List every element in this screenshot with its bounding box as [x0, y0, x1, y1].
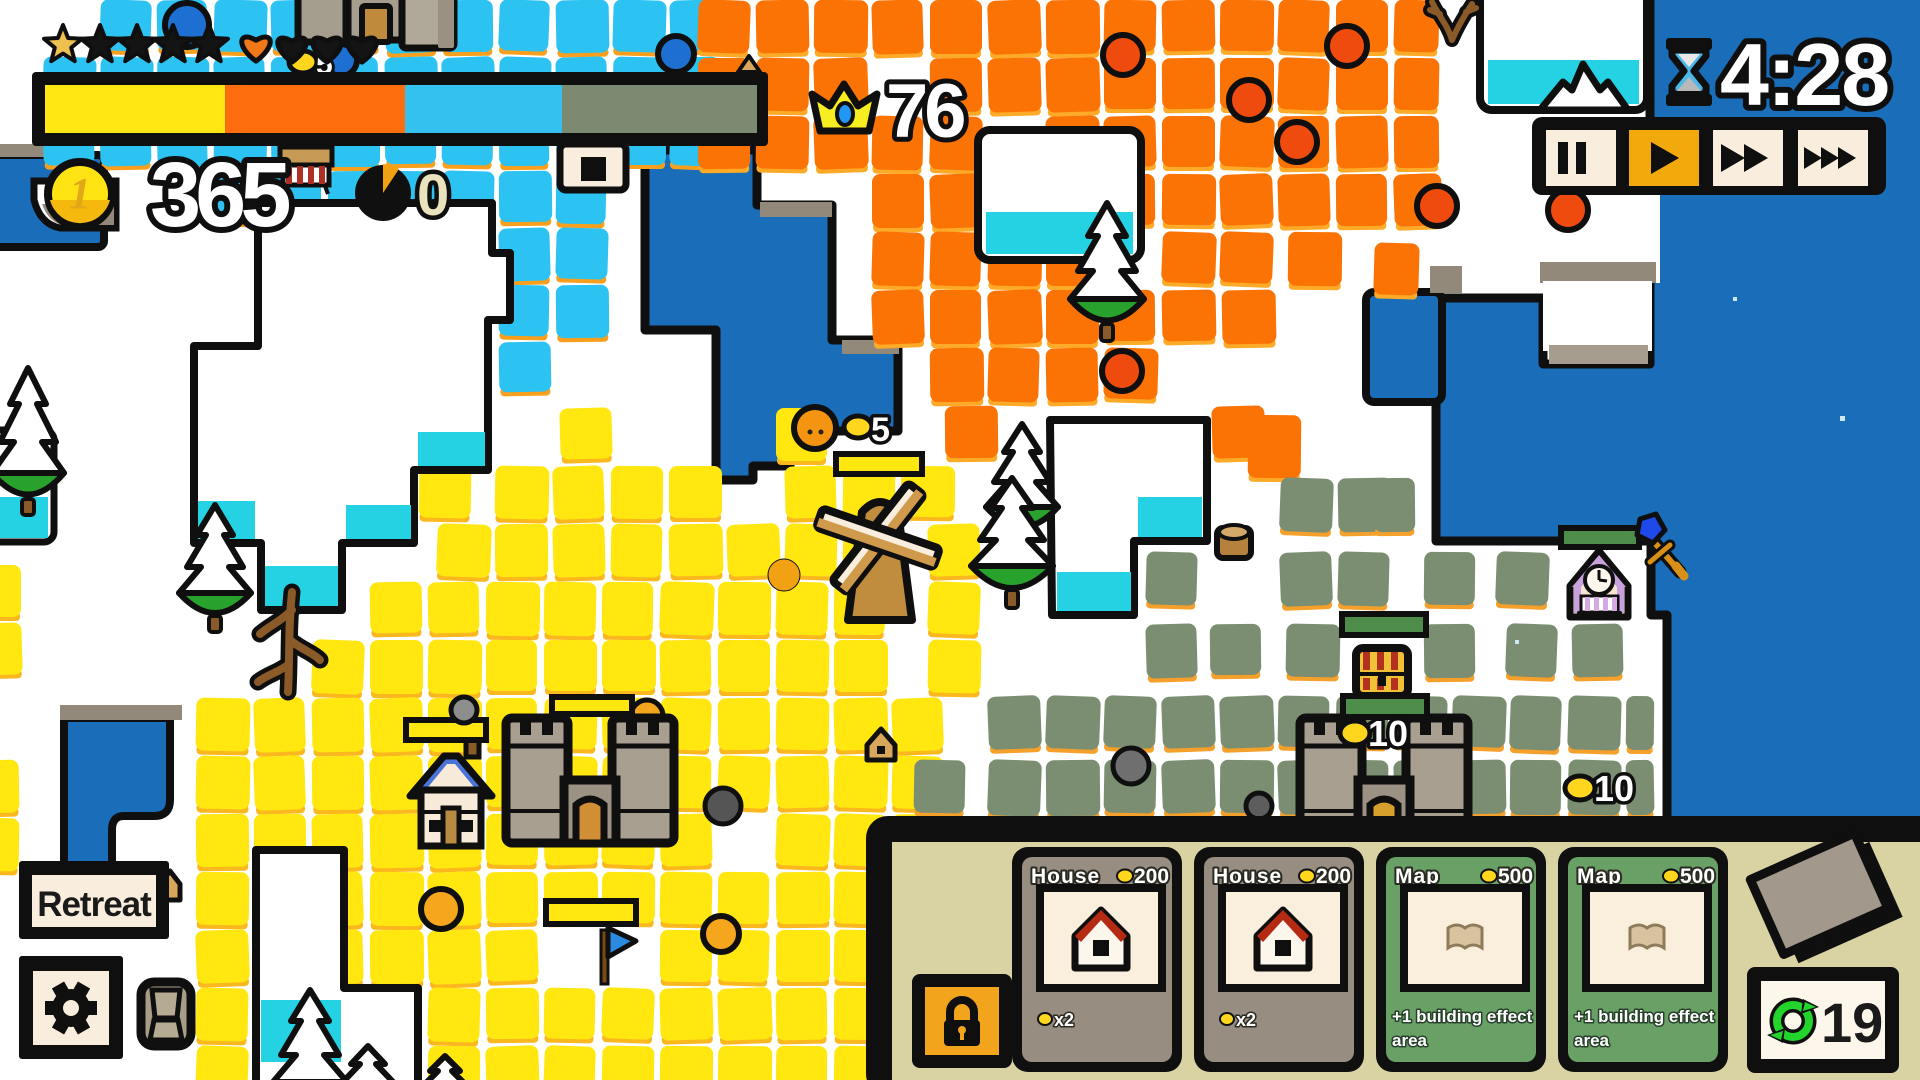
- svg-text:+1 building effect: +1 building effect: [1574, 1007, 1715, 1026]
- svg-text:x2: x2: [1054, 1010, 1074, 1030]
- svg-text:19: 19: [1821, 991, 1883, 1054]
- svg-text:5: 5: [871, 411, 890, 449]
- svg-text:+1 building effect: +1 building effect: [1392, 1007, 1533, 1026]
- svg-text:area: area: [1574, 1031, 1610, 1050]
- svg-text:1: 1: [69, 169, 91, 218]
- svg-text:10: 10: [1594, 768, 1634, 809]
- svg-text:area: area: [1392, 1031, 1428, 1050]
- svg-text:365: 365: [150, 144, 289, 246]
- svg-text:x2: x2: [1236, 1010, 1256, 1030]
- svg-text:0: 0: [417, 163, 449, 228]
- svg-text:76: 76: [886, 69, 964, 154]
- svg-text:10: 10: [1368, 713, 1408, 754]
- svg-text:Retreat: Retreat: [37, 885, 152, 924]
- svg-text:4:28: 4:28: [1720, 25, 1888, 124]
